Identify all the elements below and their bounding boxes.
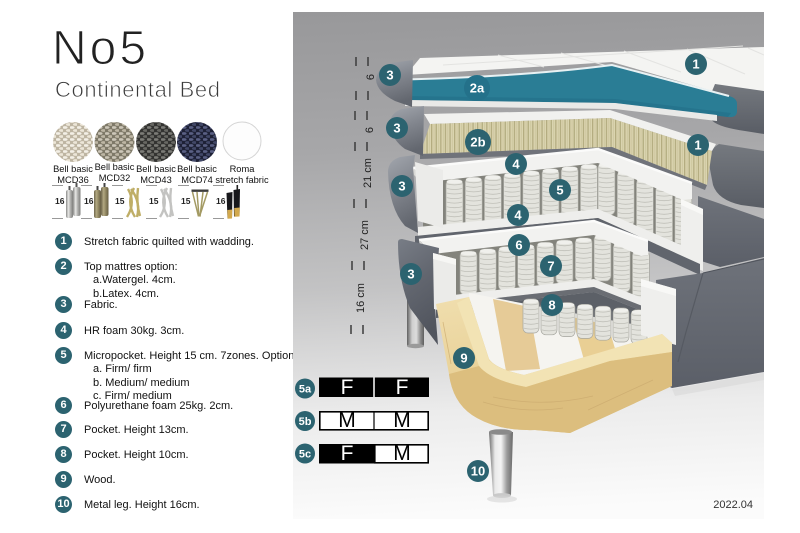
svg-text:16: 16 <box>216 196 226 206</box>
svg-text:4: 4 <box>512 157 520 172</box>
svg-text:9: 9 <box>460 351 467 366</box>
svg-text:M: M <box>393 409 411 432</box>
svg-text:5b: 5b <box>299 416 312 428</box>
svg-text:F: F <box>396 376 409 399</box>
svg-text:21 cm: 21 cm <box>362 158 374 188</box>
svg-text:M: M <box>338 409 356 432</box>
svg-text:16: 16 <box>55 196 65 206</box>
svg-text:8: 8 <box>548 298 555 313</box>
svg-text:5c: 5c <box>299 448 311 460</box>
svg-text:27 cm: 27 cm <box>359 220 371 250</box>
svg-text:6: 6 <box>515 238 522 253</box>
svg-text:2b: 2b <box>470 135 485 150</box>
svg-text:15: 15 <box>115 196 125 206</box>
svg-text:2a: 2a <box>470 81 485 96</box>
svg-text:1: 1 <box>692 57 699 72</box>
svg-text:16: 16 <box>84 196 94 206</box>
svg-text:10: 10 <box>471 464 485 479</box>
svg-text:3: 3 <box>386 68 393 83</box>
svg-text:7: 7 <box>547 259 554 274</box>
svg-text:2022.04: 2022.04 <box>713 499 753 511</box>
svg-text:3: 3 <box>407 267 414 282</box>
svg-text:16 cm: 16 cm <box>355 283 367 313</box>
svg-text:15: 15 <box>181 196 191 206</box>
svg-text:4: 4 <box>514 208 522 223</box>
svg-text:F: F <box>341 376 354 399</box>
svg-text:15: 15 <box>149 196 159 206</box>
svg-text:F: F <box>341 442 354 465</box>
svg-text:5: 5 <box>556 183 563 198</box>
svg-text:5a: 5a <box>299 383 312 395</box>
svg-text:M: M <box>393 442 411 465</box>
svg-text:6: 6 <box>364 127 376 133</box>
svg-text:6: 6 <box>365 74 377 80</box>
svg-text:1: 1 <box>694 138 701 153</box>
svg-text:3: 3 <box>393 121 400 136</box>
svg-text:3: 3 <box>398 179 405 194</box>
